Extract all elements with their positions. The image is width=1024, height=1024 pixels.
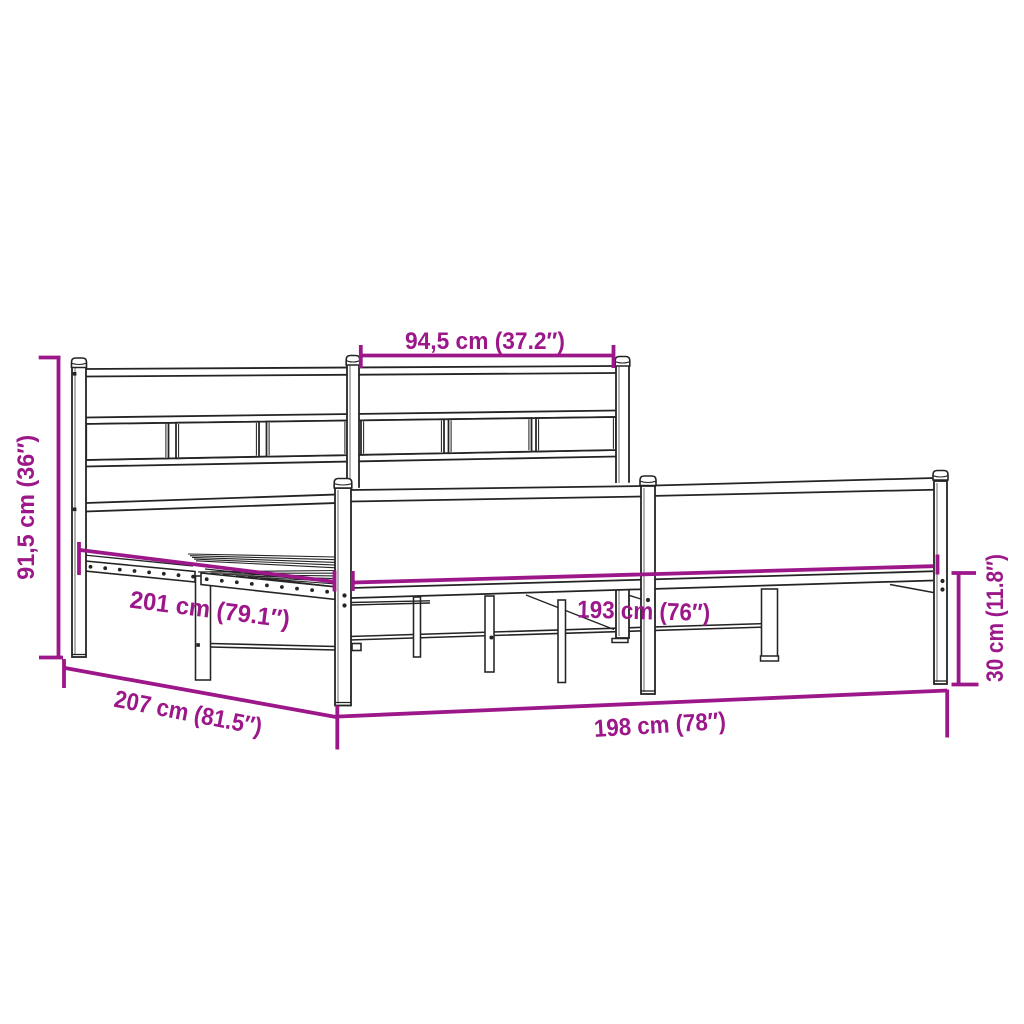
- svg-text:30 cm (11.8″): 30 cm (11.8″): [982, 554, 1009, 682]
- svg-text:94,5 cm (37.2″): 94,5 cm (37.2″): [405, 328, 565, 355]
- svg-text:193 cm (76″): 193 cm (76″): [577, 597, 711, 627]
- svg-text:91,5 cm (36″): 91,5 cm (36″): [13, 435, 40, 580]
